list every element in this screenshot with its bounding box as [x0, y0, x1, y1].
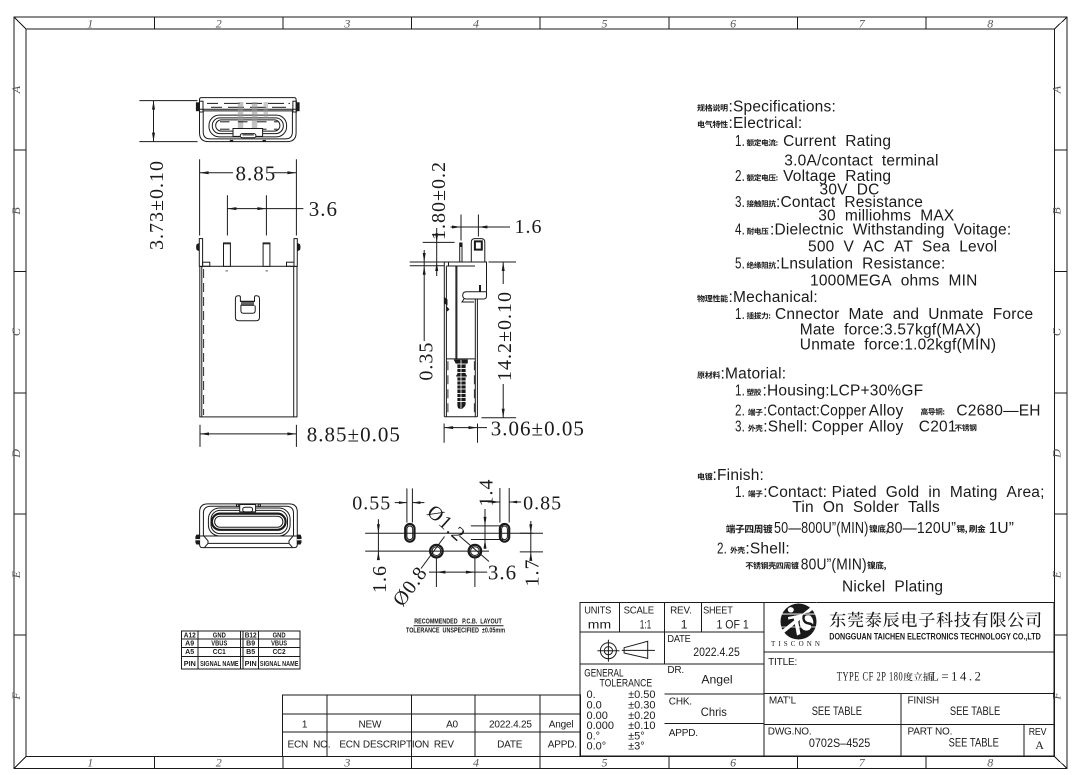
svg-text:7: 7 — [859, 17, 866, 31]
svg-text:CC2: CC2 — [273, 649, 286, 656]
svg-text:SIGNAL NAME: SIGNAL NAME — [200, 661, 239, 668]
svg-text:SHEET: SHEET — [703, 606, 733, 617]
svg-text:3.6: 3.6 — [488, 561, 517, 585]
svg-text:6: 6 — [730, 17, 736, 31]
svg-text:0.0°: 0.0° — [587, 741, 607, 753]
svg-text:2: 2 — [216, 756, 222, 770]
svg-text:3.0A/contact terminal: 3.0A/contact terminal — [784, 153, 938, 170]
svg-text:Alloy: Alloy — [869, 419, 904, 436]
svg-text:TISCONN: TISCONN — [771, 640, 823, 648]
svg-text:1: 1 — [87, 17, 93, 31]
svg-text:E: E — [1050, 570, 1064, 579]
svg-text::Electrical:: :Electrical: — [729, 115, 803, 132]
svg-text:L=14.2: L=14.2 — [931, 669, 983, 683]
svg-text:3.6: 3.6 — [309, 197, 338, 221]
svg-text:A: A — [1050, 85, 1064, 94]
svg-text:B9: B9 — [246, 641, 255, 648]
svg-text:PIN: PIN — [184, 661, 196, 668]
svg-text:A9: A9 — [185, 641, 194, 648]
svg-text:Nickel Plating: Nickel Plating — [842, 579, 943, 596]
svg-text:B5: B5 — [246, 649, 255, 656]
svg-text:CC1: CC1 — [213, 649, 226, 656]
svg-text:SEE TABLE: SEE TABLE — [950, 704, 1000, 718]
svg-text:D: D — [1050, 449, 1064, 459]
svg-text::Contact:Copper: :Contact:Copper — [763, 403, 866, 420]
svg-text:7: 7 — [859, 756, 866, 770]
svg-text:14.2±0.10: 14.2±0.10 — [494, 291, 516, 381]
svg-text:6: 6 — [730, 756, 736, 770]
svg-text:3.06±0.05: 3.06±0.05 — [491, 417, 585, 441]
svg-text:DONGGUAN TAICHEN ELECTRONICS T: DONGGUAN TAICHEN ELECTRONICS TECHNOLOGY … — [829, 632, 1041, 643]
svg-text:Copper: Copper — [812, 419, 864, 436]
svg-text:Current Rating: Current Rating — [783, 133, 891, 150]
svg-text:APPD.: APPD. — [669, 728, 698, 739]
svg-text:2022.4.25: 2022.4.25 — [693, 645, 740, 659]
svg-text:SCALE: SCALE — [624, 606, 655, 617]
svg-text:DESCRIPTION: DESCRIPTION — [363, 740, 429, 751]
svg-text:2022.4.25: 2022.4.25 — [489, 720, 532, 731]
svg-text:5: 5 — [602, 17, 608, 31]
svg-text:1: 1 — [681, 618, 688, 632]
svg-text:5.: 5. — [735, 256, 745, 273]
svg-text:B: B — [1050, 207, 1064, 215]
svg-text:DATE: DATE — [497, 740, 523, 751]
svg-text:UNITS: UNITS — [584, 606, 611, 617]
svg-text:3.: 3. — [735, 419, 745, 436]
svg-text:PIN: PIN — [245, 661, 257, 668]
svg-text::Lnsulation Resistance:: :Lnsulation Resistance: — [776, 256, 945, 273]
svg-text:PART NO.: PART NO. — [908, 727, 953, 738]
svg-text:3: 3 — [343, 756, 350, 770]
svg-text:3: 3 — [343, 17, 350, 31]
svg-text:2.: 2. — [735, 403, 745, 420]
svg-text:1:1: 1:1 — [640, 618, 652, 632]
svg-text:C2680—EH: C2680—EH — [956, 403, 1040, 420]
svg-text:C: C — [9, 327, 23, 336]
svg-text:TYPE CF 2P 180: TYPE CF 2P 180 — [837, 669, 903, 683]
svg-text:5: 5 — [602, 756, 608, 770]
svg-text:8.85: 8.85 — [236, 162, 277, 186]
svg-text:Chris: Chris — [701, 705, 727, 719]
svg-text:NEW: NEW — [359, 720, 382, 731]
svg-text:VBUS: VBUS — [211, 641, 227, 648]
svg-text::Matorial:: :Matorial: — [721, 366, 787, 383]
svg-text:Cnnector Mate and Unmate F: Cnnector Mate and Unmate Force — [775, 306, 1033, 323]
svg-text:ECN: ECN — [339, 740, 360, 751]
svg-text:1 OF 1: 1 OF 1 — [717, 618, 749, 632]
svg-text:3.: 3. — [735, 194, 745, 211]
svg-text:2.: 2. — [735, 168, 745, 185]
svg-text::Finish:: :Finish: — [713, 467, 765, 484]
svg-text:A5: A5 — [185, 649, 194, 656]
svg-text:REV.: REV. — [670, 606, 691, 617]
svg-text:8: 8 — [987, 17, 993, 31]
svg-text:REV: REV — [434, 740, 454, 751]
svg-text:RECOMMENDED P.C.B. LAYOUT: RECOMMENDED P.C.B. LAYOUT — [414, 619, 502, 626]
svg-text:0.35: 0.35 — [416, 342, 438, 381]
svg-text:ECN NO.: ECN NO. — [287, 740, 330, 751]
svg-text:F: F — [1050, 692, 1064, 701]
svg-text:0702S–4525: 0702S–4525 — [809, 736, 871, 750]
svg-text:SEE TABLE: SEE TABLE — [812, 704, 862, 718]
svg-text:1: 1 — [302, 720, 308, 731]
svg-text:E: E — [9, 570, 23, 579]
svg-text:A: A — [1035, 738, 1044, 752]
svg-text:DATE: DATE — [667, 634, 691, 645]
svg-text:1.: 1. — [735, 306, 745, 323]
svg-text:DWG.NO.: DWG.NO. — [768, 727, 812, 738]
svg-text:F: F — [9, 692, 23, 701]
svg-text::Shell:: :Shell: — [745, 541, 789, 558]
svg-text:CHK.: CHK. — [669, 697, 692, 708]
svg-text:4.: 4. — [735, 222, 745, 239]
svg-text:Angel: Angel — [701, 672, 732, 686]
svg-text:1U”: 1U” — [989, 520, 1015, 537]
svg-text:1.80±0.2: 1.80±0.2 — [428, 161, 450, 240]
svg-text:A12: A12 — [184, 633, 196, 640]
svg-text:DR.: DR. — [667, 665, 684, 676]
svg-text:Unmate force:1.02kgf(MIN): Unmate force:1.02kgf(MIN) — [800, 337, 996, 354]
svg-text::Shell:: :Shell: — [763, 419, 807, 436]
svg-text:SIGNAL NAME: SIGNAL NAME — [260, 661, 299, 668]
svg-text:±3°: ±3° — [628, 741, 645, 753]
svg-text:B12: B12 — [245, 633, 257, 640]
svg-text:2.: 2. — [717, 541, 727, 558]
svg-text:8: 8 — [987, 756, 993, 770]
svg-text:TOLERANCE: TOLERANCE — [600, 678, 653, 690]
svg-text:1.6: 1.6 — [369, 565, 391, 593]
svg-text:D: D — [9, 449, 23, 459]
svg-text:4: 4 — [473, 17, 479, 31]
svg-text:1.: 1. — [735, 133, 745, 150]
svg-text:Alloy: Alloy — [869, 403, 904, 420]
svg-text:0.55: 0.55 — [352, 493, 391, 515]
svg-text:4: 4 — [473, 756, 479, 770]
svg-text:FINISH: FINISH — [908, 696, 940, 707]
svg-text:80—120U”: 80—120U” — [887, 520, 957, 537]
svg-text:500 V AC AT Sea Levol: 500 V AC AT Sea Levol — [808, 239, 997, 256]
svg-text:B: B — [9, 207, 23, 215]
svg-text:C: C — [1050, 327, 1064, 336]
svg-text:50—800U”(MIN): 50—800U”(MIN) — [774, 520, 869, 537]
svg-text::Housing:LCP+30%GF: :Housing:LCP+30%GF — [763, 383, 924, 400]
svg-text:VBUS: VBUS — [271, 641, 287, 648]
svg-text:REV: REV — [1029, 727, 1047, 738]
svg-text:mm: mm — [588, 618, 611, 632]
svg-text:0.85: 0.85 — [523, 493, 562, 515]
svg-text:GND: GND — [273, 633, 286, 640]
svg-text:1.: 1. — [735, 484, 745, 501]
svg-text::Dielectnic Withstanding Voi: :Dielectnic Withstanding Voitage: — [770, 222, 1011, 239]
svg-text:TITLE:: TITLE: — [768, 657, 797, 668]
svg-text::Mechanical:: :Mechanical: — [729, 289, 818, 306]
svg-text:GND: GND — [213, 633, 226, 640]
svg-text:8.85±0.05: 8.85±0.05 — [307, 423, 401, 447]
svg-text:Tin On Solder Talls: Tin On Solder Talls — [792, 499, 940, 516]
svg-text:A: A — [9, 85, 23, 94]
svg-text:1.: 1. — [735, 383, 745, 400]
svg-text:APPD.: APPD. — [548, 740, 577, 751]
svg-text:SEE TABLE: SEE TABLE — [949, 736, 999, 750]
svg-text:Angel: Angel — [549, 720, 574, 731]
svg-text:1.6: 1.6 — [515, 216, 543, 238]
svg-text:2: 2 — [216, 17, 222, 31]
svg-text:80U”(MIN): 80U”(MIN) — [801, 557, 867, 574]
svg-text:A0: A0 — [446, 720, 458, 731]
svg-text:TOLERANCE UNSPECIFIED ±0.05m: TOLERANCE UNSPECIFIED ±0.05mm — [406, 627, 505, 634]
svg-text:MAT’L: MAT’L — [769, 696, 797, 707]
svg-text::Specifications:: :Specifications: — [729, 99, 836, 116]
svg-text:1.7: 1.7 — [522, 559, 544, 587]
svg-text:C201: C201 — [919, 419, 957, 436]
svg-text:3.73±0.10: 3.73±0.10 — [146, 160, 168, 250]
svg-text:1: 1 — [87, 756, 93, 770]
svg-text:1000MEGA ohms MIN: 1000MEGA ohms MIN — [810, 273, 977, 290]
